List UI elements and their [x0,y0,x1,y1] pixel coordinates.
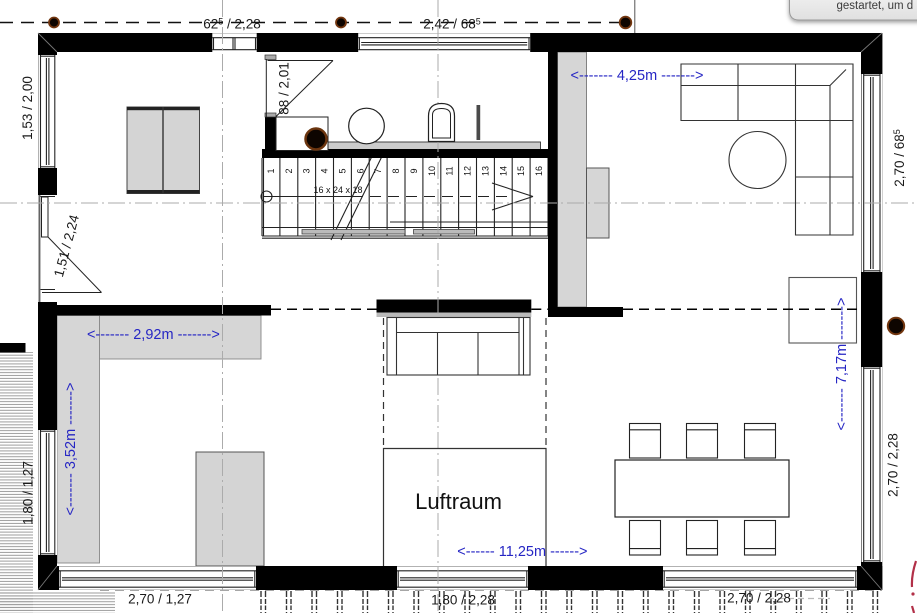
svg-text:2,70 / 2,28: 2,70 / 2,28 [886,433,901,497]
svg-text:2,42 / 685: 2,42 / 685 [423,16,481,31]
svg-text:2: 2 [284,168,294,173]
svg-text:<------- 2,92m ------->: <------- 2,92m -------> [87,327,220,343]
svg-text:2,70 / 685: 2,70 / 685 [892,129,907,187]
svg-text:16: 16 [534,166,544,176]
svg-text:1,80 / 2,28: 1,80 / 2,28 [431,593,495,608]
svg-text:9: 9 [409,168,419,173]
svg-text:4: 4 [320,168,330,173]
svg-text:5: 5 [337,168,347,173]
svg-text:2,70 / 2,28: 2,70 / 2,28 [727,591,791,606]
svg-text:1,53 / 2,00: 1,53 / 2,00 [20,76,35,140]
svg-text:Luftraum: Luftraum [415,489,502,514]
svg-text:14: 14 [498,166,508,176]
svg-text:15: 15 [516,166,526,176]
svg-text:gestartet, um d: gestartet, um d [837,0,914,12]
svg-text:13: 13 [480,166,490,176]
svg-text:6: 6 [355,168,365,173]
svg-text:<------ 11,25m ------>: <------ 11,25m ------> [457,544,587,560]
svg-text:11: 11 [445,166,455,175]
svg-text:10: 10 [427,166,437,176]
svg-text:1: 1 [266,168,276,173]
svg-text:<------- 4,25m ------->: <------- 4,25m -------> [571,68,704,84]
svg-text:16 x 24 x 18: 16 x 24 x 18 [313,185,362,195]
svg-text:2,70 / 1,27: 2,70 / 1,27 [128,592,192,607]
svg-text:7: 7 [373,168,383,173]
svg-text:88 / 2,01: 88 / 2,01 [277,62,292,115]
svg-text:1,80 / 1,27: 1,80 / 1,27 [21,461,36,525]
svg-text:8: 8 [391,168,401,173]
svg-text:625 / 2,28: 625 / 2,28 [203,16,261,31]
svg-text:<------- 7,17m ------->: <------- 7,17m -------> [834,298,850,431]
svg-text:12: 12 [463,166,473,176]
svg-text:<------- 3,52m ------->: <------- 3,52m -------> [63,383,79,516]
svg-text:3: 3 [302,168,312,173]
